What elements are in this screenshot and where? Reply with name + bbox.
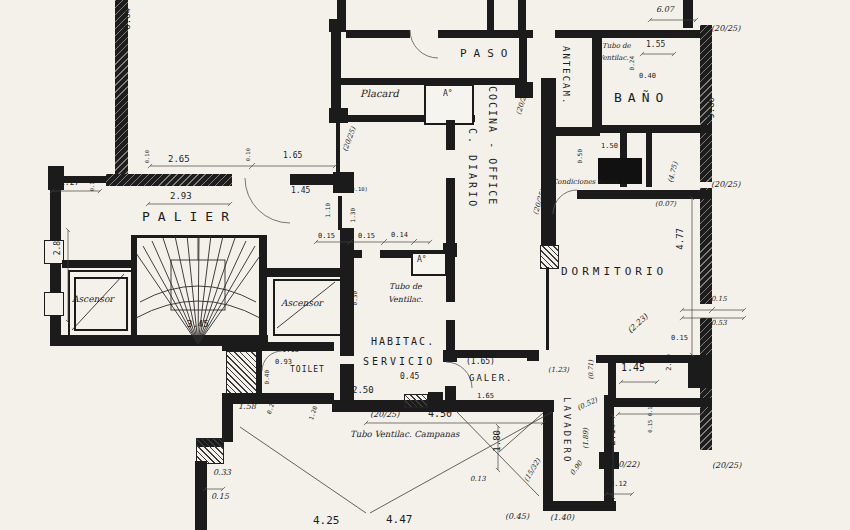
dim-0.15-0.15: 0.15 0.15 xyxy=(648,403,654,433)
dim-2.60: 2.60 xyxy=(666,354,673,371)
vent-hatch xyxy=(404,394,428,408)
dim-0.15-closet: 0.15 xyxy=(671,335,688,342)
note-tubo-servicio-2: Ventilac. xyxy=(388,296,423,304)
wall xyxy=(446,178,455,248)
dim-0.40-toilet: 0.40 xyxy=(264,370,270,384)
dim-8.84: 8.84 xyxy=(123,8,132,30)
dim-4.50: 4.50 xyxy=(428,409,452,419)
wall xyxy=(553,127,600,136)
wall xyxy=(487,0,494,30)
dim-0.71: (0.71) xyxy=(588,360,595,380)
dim-0.50: 0.50 xyxy=(577,149,583,163)
room-label-banio: BAÑO xyxy=(614,91,669,104)
dim-3.45: 3.45 xyxy=(187,320,209,329)
wall xyxy=(608,357,616,403)
dim-1.89: (1.89) xyxy=(583,428,590,449)
dim-1.45-palier: 1.45 xyxy=(291,187,310,195)
wall xyxy=(290,174,338,185)
wall xyxy=(336,120,340,174)
dim-0.40: 0.40 xyxy=(639,73,656,80)
dim-20-25-e: (20/25) xyxy=(712,462,741,470)
dim-0.45-bottom: (0.45) xyxy=(505,513,529,521)
wall xyxy=(646,130,652,187)
room-label-dormitorio: DORMITORIO xyxy=(561,266,667,277)
wall xyxy=(338,196,342,230)
dim-4.25: 4.25 xyxy=(313,515,340,526)
dim-0.52: (0.52) xyxy=(577,397,599,412)
floor-plan-canvas: PASO BAÑO ANTECAM. COCINA - OFFICE C. DI… xyxy=(0,0,850,530)
dim-0.15-row-a: 0.15 xyxy=(318,233,335,240)
wall xyxy=(62,260,132,268)
room-label-toilet: TOILET xyxy=(290,366,325,374)
dim-1.65-galeria-paren: (1.65) xyxy=(466,358,495,366)
dim-0.30: 0.30 xyxy=(352,291,358,305)
note-condiciones: Condiciones ferias xyxy=(552,179,618,186)
dim-1.65-galeria: 1.65 xyxy=(477,393,494,400)
wall xyxy=(543,501,616,511)
wall-pier xyxy=(688,357,712,388)
dim-1.23: (1.23) xyxy=(548,367,569,374)
dim-0.14: 0.14 xyxy=(391,232,408,239)
dim-2.50: 2.50 xyxy=(352,386,374,395)
dim-0.53: 0.53 xyxy=(711,320,727,327)
dim-20-25-b: (20/25) xyxy=(711,181,740,189)
shaft-hatch xyxy=(226,351,260,397)
vent-block xyxy=(428,392,443,405)
dim-0.93: 0.93 xyxy=(275,359,292,366)
dim-20-25-f: (20/25) xyxy=(342,126,357,152)
note-tubo-banio-2: Ventilac. xyxy=(598,55,629,62)
dim-2.93: 2.93 xyxy=(170,192,192,201)
wall xyxy=(592,33,602,130)
note-tubo-banio-1: Tubo de xyxy=(602,43,631,50)
dim-4.77: 4.77 xyxy=(676,228,685,250)
dim-1.55: 1.55 xyxy=(646,41,665,49)
room-label-antecam: ANTECAM. xyxy=(561,46,570,105)
wall xyxy=(446,120,455,150)
wall xyxy=(333,78,341,122)
closet-a-label-servicio: A° xyxy=(417,256,427,264)
dim-20-25-a: (20/25) xyxy=(711,25,740,33)
room-label-ascensor-left: Ascensor xyxy=(72,295,114,304)
dim-1.80: 1.80 xyxy=(493,430,502,452)
dim-0.45: 0.45 xyxy=(400,373,419,381)
dim-2.65: 2.65 xyxy=(168,155,190,164)
wall xyxy=(337,0,346,32)
dim-4.47: 4.47 xyxy=(386,514,413,525)
note-tubo-campanas: Tubo Ventilac. Campanas xyxy=(350,430,459,439)
wall xyxy=(222,342,334,351)
room-label-paso: PASO xyxy=(460,48,515,59)
dim-1.65-palier: 1.65 xyxy=(283,152,302,160)
dim-1.27: 1.27 xyxy=(60,179,79,187)
dim-20-22: (20/22) xyxy=(610,461,639,469)
dim-2.14: 2.14 xyxy=(608,424,617,446)
dim-1.30: 1.30 xyxy=(350,208,356,222)
wall xyxy=(266,268,345,277)
dim-0.12: 0.12 xyxy=(610,481,627,488)
room-label-placard: Placard xyxy=(360,89,399,99)
room-label-galeria: GALER. xyxy=(469,374,514,383)
note-tubo-servicio-1: Tubo de xyxy=(389,283,422,291)
room-label-c-diario: C. DIARIO xyxy=(467,128,477,209)
wall xyxy=(541,78,556,245)
wall xyxy=(446,320,455,352)
dim-15-32: (15/32) xyxy=(523,458,542,484)
dim-0.33: 0.33 xyxy=(213,469,231,477)
room-label-lavadero: LAVADERO xyxy=(562,397,571,464)
closet-a-label-top: A° xyxy=(443,90,453,98)
dim-0.15-right-a: 0.15 xyxy=(711,296,727,303)
dim-1.10: 1.10 xyxy=(325,203,331,217)
room-label-palier: PALIER xyxy=(142,210,237,223)
room-label-habitac: HABITAC. xyxy=(371,337,435,347)
wall xyxy=(683,0,693,28)
dim-0.10-b: 0.10 xyxy=(246,148,252,161)
wall xyxy=(354,250,362,258)
wall xyxy=(222,402,233,442)
wall xyxy=(555,30,712,38)
dim-1.45-closet: 1.45 xyxy=(621,363,645,373)
dim-0.13: 0.13 xyxy=(470,476,486,483)
dim-1.73: 1.73 xyxy=(622,400,641,408)
wall xyxy=(446,257,455,302)
room-label-servicio: SERVICIO xyxy=(363,357,435,367)
wall xyxy=(438,30,533,38)
dim-2.23: (2.23) xyxy=(626,313,649,335)
wall xyxy=(518,0,526,30)
wall xyxy=(195,461,207,530)
wall xyxy=(600,125,712,133)
wall xyxy=(700,188,712,304)
wall xyxy=(106,174,232,186)
door-block xyxy=(540,245,559,269)
vent-block xyxy=(445,392,455,405)
wall xyxy=(131,235,267,238)
room-label-cocina-office: COCINA - OFFICE xyxy=(487,86,497,206)
dim-0.10-paren: (0.10) xyxy=(348,187,368,193)
dim-0.10-a: 0.10 xyxy=(145,150,151,163)
dim-2.80: 2.80 xyxy=(54,236,62,255)
wall xyxy=(131,238,137,338)
wall xyxy=(546,267,549,350)
dim-1.40-bottom: (1.40) xyxy=(550,514,574,522)
dim-9.86: 9.86 xyxy=(707,97,716,119)
dim-20-25-g: (20/25) xyxy=(370,411,399,419)
dim-0.15-row-b: 0.15 xyxy=(358,233,375,240)
wall-pier xyxy=(527,350,539,361)
dim-0.15-bottomleft: 0.15 xyxy=(211,493,229,501)
wall xyxy=(256,351,262,395)
dim-0.24: 0.24 xyxy=(629,56,635,70)
wall xyxy=(543,400,553,510)
dim-4.75: (4.75) xyxy=(667,161,679,183)
dim-0.07: (0.07) xyxy=(655,201,676,208)
dim-1.20: 1.20 xyxy=(308,405,319,421)
dim-6.07: 6.07 xyxy=(656,6,674,14)
wall xyxy=(340,364,354,404)
room-label-ascensor-right: Ascensor xyxy=(281,299,323,308)
wall xyxy=(577,190,712,199)
dim-0.10-c: 0.10 xyxy=(90,178,96,191)
window xyxy=(44,292,64,316)
dim-1.58: 1.58 xyxy=(238,403,256,411)
wall xyxy=(259,238,267,338)
dim-1.50: 1.50 xyxy=(601,143,618,150)
wall xyxy=(346,30,410,38)
dim-1.15: 1.15 xyxy=(282,347,299,354)
elevator-car xyxy=(74,277,128,331)
